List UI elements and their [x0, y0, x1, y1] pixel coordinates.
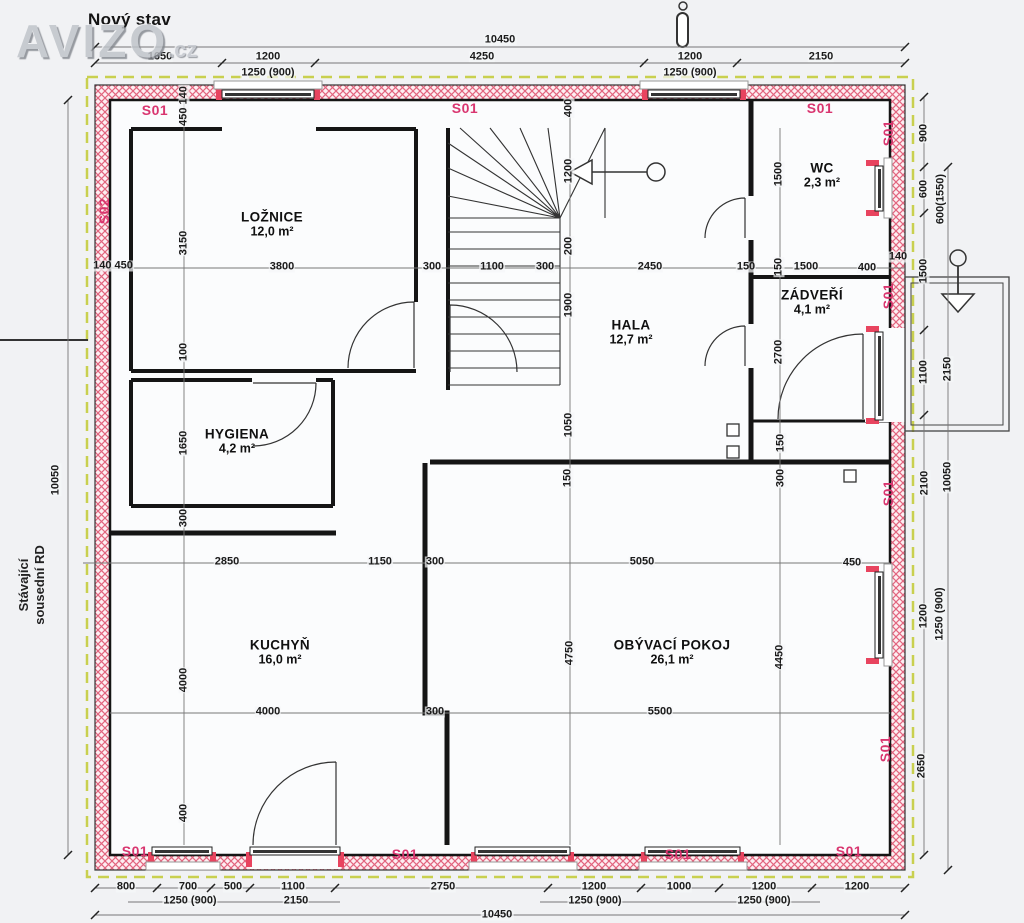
dimension-label: 5500 [647, 707, 673, 718]
dimension-label: 10450 [481, 910, 514, 921]
dimension-label: 300 [422, 262, 442, 273]
dimension-label: 700 [178, 882, 198, 893]
room-label-obyvaci-pokoj: OBÝVACÍ POKOJ26,1 m² [614, 638, 731, 667]
dimension-label: 2850 [214, 557, 240, 568]
dimension-label: 2150 [808, 52, 834, 63]
room-label-zadveri: ZÁDVEŘÍ4,1 m² [781, 288, 843, 317]
construction-type-label: S01 [881, 120, 895, 146]
dimension-label: 1150 [367, 557, 393, 568]
room-label-loznice: LOŽNICE12,0 m² [241, 210, 303, 239]
dimension-label: 600 [919, 179, 930, 199]
construction-type-label: S01 [807, 101, 833, 115]
dimension-label: 1200 [751, 882, 777, 893]
floor-plan-page: Nový stav AVIZO.cz Stávající sousední RD [0, 0, 1024, 923]
dimension-label: 1200 [255, 52, 281, 63]
construction-type-label: S01 [392, 847, 418, 861]
room-area: 16,0 m² [250, 653, 310, 667]
dimension-label: 4750 [565, 640, 576, 666]
room-label-kuchyn: KUCHYŇ16,0 m² [250, 638, 310, 667]
dimension-label: 1000 [666, 882, 692, 893]
dimension-label: 1200 [844, 882, 870, 893]
room-name: KUCHYŇ [250, 638, 310, 653]
construction-type-label: S01 [452, 101, 478, 115]
room-area: 12,7 m² [609, 333, 652, 347]
construction-type-label: S01 [881, 283, 895, 309]
room-name: HALA [609, 318, 652, 333]
room-name: WC [804, 161, 840, 176]
room-area: 4,1 m² [781, 303, 843, 317]
dimension-label: 1250 (900) [567, 896, 622, 907]
construction-type-label: S01 [142, 103, 168, 117]
dimension-label: 1250 (900) [935, 586, 946, 641]
dimension-label: 300 [425, 707, 445, 718]
dimension-label: 150 [774, 257, 785, 277]
dimension-label: 1500 [793, 262, 819, 273]
dimension-label: 1050 [564, 412, 575, 438]
dimension-label: 3800 [269, 262, 295, 273]
dimension-label: 2750 [430, 882, 456, 893]
watermark-brand: AVIZO [16, 15, 168, 67]
dimension-label: 150 [776, 433, 787, 453]
dimension-label: 1500 [774, 161, 785, 187]
room-name: HYGIENA [205, 427, 269, 442]
dimension-label: 4450 [775, 644, 786, 670]
dimension-label: 140 450 [92, 261, 134, 272]
construction-type-label: S01 [878, 736, 892, 762]
dimension-label: 450 [842, 558, 862, 569]
room-area: 12,0 m² [241, 225, 303, 239]
dimension-label: 1250 (900) [662, 68, 717, 79]
dimension-label: 4250 [469, 52, 495, 63]
dimension-label: 100 [179, 342, 190, 362]
dimension-label: 1250 (900) [736, 896, 791, 907]
dimension-label: 500 [223, 882, 243, 893]
dimension-label: 140 [888, 252, 908, 263]
dimension-label: 1250 (900) [162, 896, 217, 907]
dimension-label: 1100 [280, 882, 306, 893]
dimension-label: 5050 [629, 557, 655, 568]
dimension-label: 450 140 [179, 85, 190, 127]
dimension-label: 2100 [920, 470, 931, 496]
room-name: LOŽNICE [241, 210, 303, 225]
room-area: 26,1 m² [614, 653, 731, 667]
dimension-label: 800 [116, 882, 136, 893]
dimension-label: 1250 (900) [240, 68, 295, 79]
room-label-hala: HALA12,7 m² [609, 318, 652, 347]
construction-type-label: S01 [836, 844, 862, 858]
construction-type-label: S02 [97, 198, 111, 224]
dimension-label: 10050 [943, 461, 954, 494]
room-label-wc: WC2,3 m² [804, 161, 840, 190]
dimension-label: 2150 [283, 896, 309, 907]
dimension-label: 150 [563, 468, 574, 488]
dimension-label: 200 [564, 236, 575, 256]
dimension-label: 1200 [677, 52, 703, 63]
dimension-label: 1200 [919, 603, 930, 629]
dimension-label: 300 [535, 262, 555, 273]
construction-type-label: S01 [665, 847, 691, 861]
dimension-label: 400 [857, 263, 877, 274]
dimension-label: 400 [179, 803, 190, 823]
dimension-label: 1200 [564, 158, 575, 184]
dimension-label: 4000 [179, 667, 190, 693]
dimension-label: 600(1550) [936, 173, 947, 225]
dimension-label: 4000 [255, 707, 281, 718]
dimension-label: 3150 [179, 230, 190, 256]
dimension-label: 400 [564, 98, 575, 118]
room-area: 2,3 m² [804, 176, 840, 190]
dimension-label: 1200 [581, 882, 607, 893]
construction-type-label: S01 [122, 844, 148, 858]
plan-labels: 10450165012004250120021501250 (900)1250 … [0, 0, 1024, 923]
watermark-tld: .cz [168, 37, 197, 62]
dimension-label: 10450 [484, 35, 517, 46]
room-label-hygiena: HYGIENA4,2 m² [205, 427, 269, 456]
construction-type-label: S01 [881, 480, 895, 506]
dimension-label: 1650 [179, 430, 190, 456]
dimension-label: 1900 [564, 292, 575, 318]
dimension-label: 300 [425, 557, 445, 568]
dimension-label: 300 [179, 508, 190, 528]
dimension-label: 900 [919, 123, 930, 143]
dimension-label: 1100 [479, 262, 505, 273]
room-area: 4,2 m² [205, 442, 269, 456]
dimension-label: 1100 [919, 359, 930, 385]
dimension-label: 150 [736, 262, 756, 273]
dimension-label: 300 [776, 468, 787, 488]
dimension-label: 1500 [919, 258, 930, 284]
avizo-watermark: AVIZO.cz [16, 14, 198, 68]
dimension-label: 2450 [637, 262, 663, 273]
dimension-label: 2650 [917, 753, 928, 779]
dimension-label: 2700 [774, 339, 785, 365]
dimension-label: 10050 [51, 464, 62, 497]
room-name: ZÁDVEŘÍ [781, 288, 843, 303]
dimension-label: 2150 [943, 356, 954, 382]
room-name: OBÝVACÍ POKOJ [614, 638, 731, 653]
